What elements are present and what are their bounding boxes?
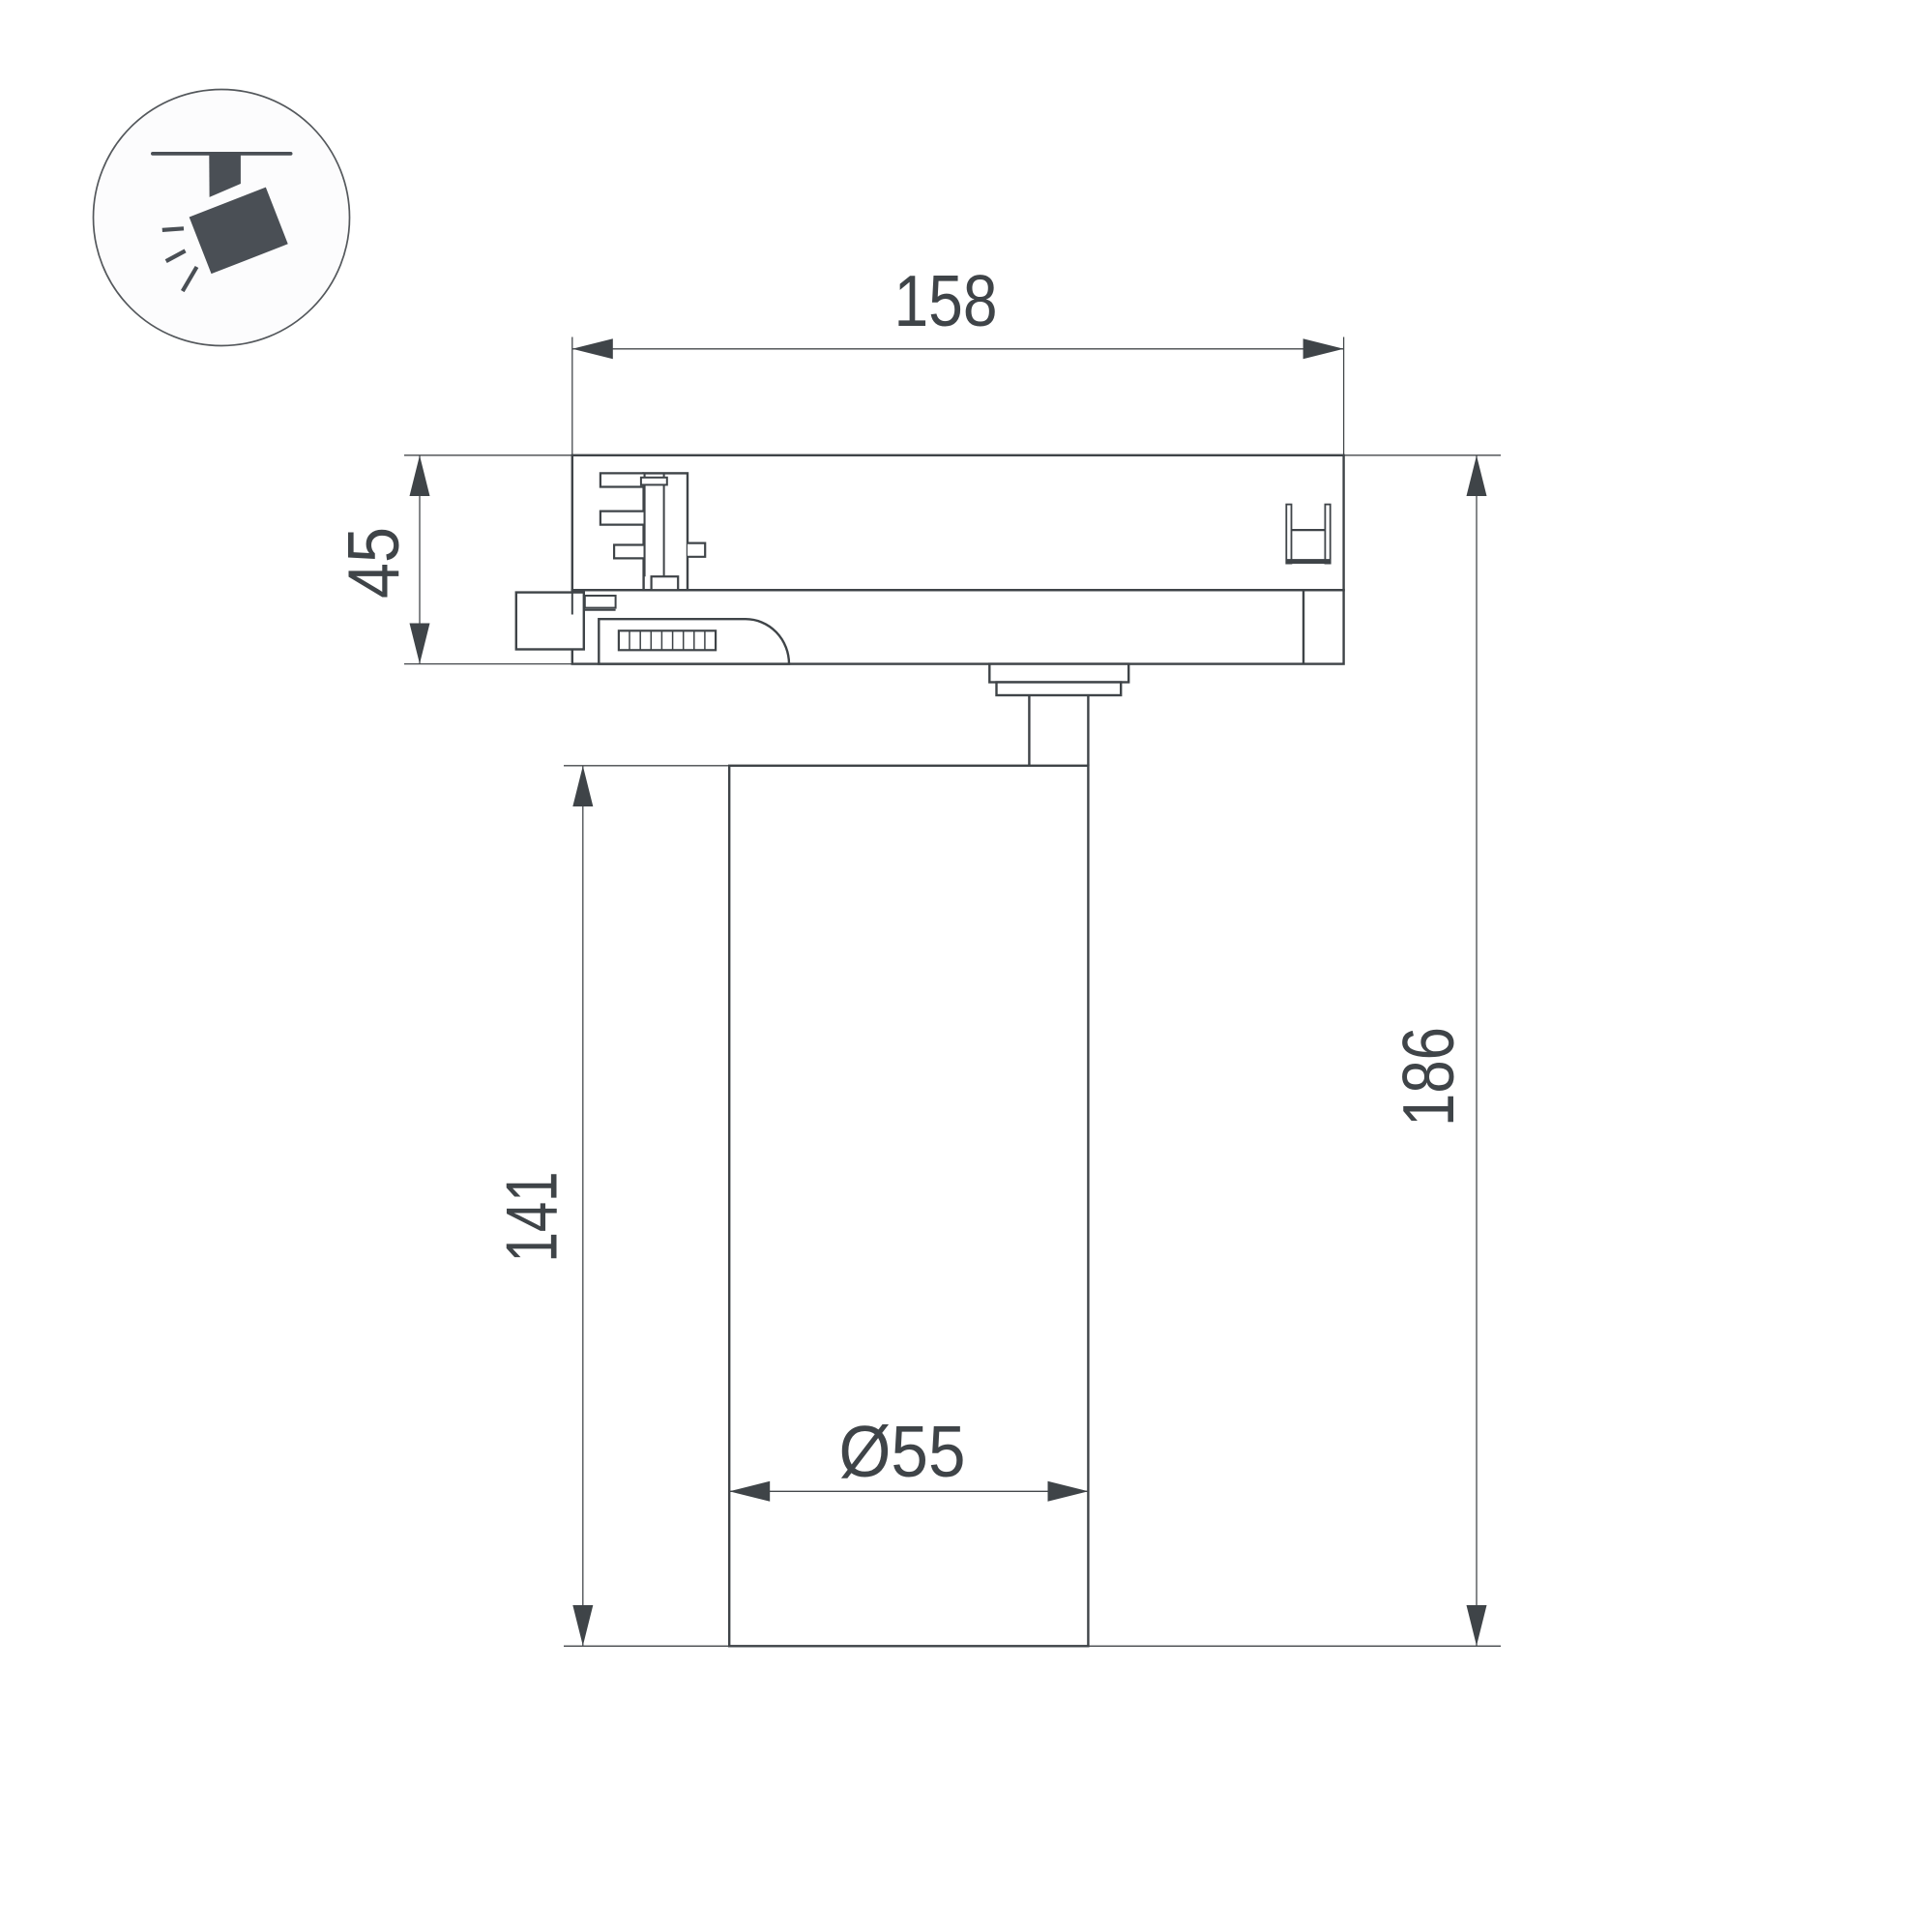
svg-text:186: 186	[1388, 1027, 1469, 1127]
svg-text:45: 45	[333, 527, 414, 599]
svg-text:Ø55: Ø55	[839, 1411, 966, 1492]
svg-text:158: 158	[894, 260, 998, 341]
svg-text:141: 141	[491, 1172, 572, 1263]
